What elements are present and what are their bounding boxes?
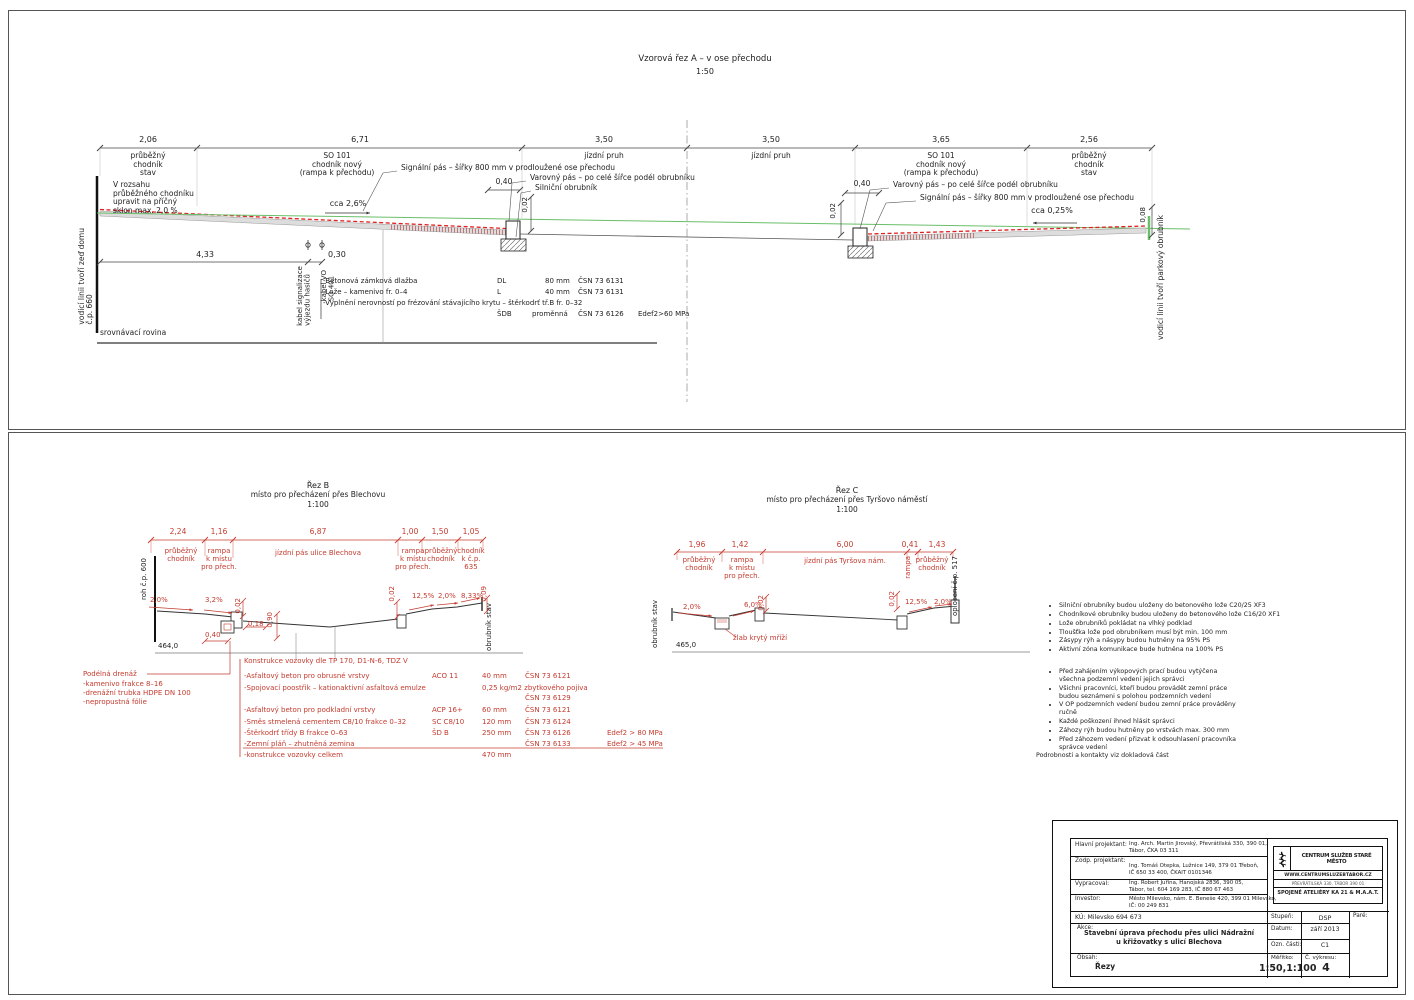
note-item: Aktivní zóna komunikace bude hutněna na … (1059, 646, 1389, 654)
note-item: Záhozy rýh budou hutněny po vrstvách max… (1059, 727, 1389, 735)
dim-b-040: 0,40 (205, 631, 221, 639)
tb-value-investor: Město Milevsko, nám. E. Beneše 420, 399 … (1129, 896, 1277, 910)
tb-divider (1071, 953, 1349, 954)
notes-list-2: Před zahájením výkopových prací budou vy… (1044, 668, 1389, 753)
dim-030: 0,30 (328, 250, 346, 259)
dim-a-label-1: průběžný chodník stav (130, 152, 165, 178)
mat-row1-norm: ČSN 73 6131 (578, 277, 624, 285)
mat-row2-norm: ČSN 73 6131 (578, 288, 624, 296)
dim-008: 0,08 (1140, 207, 1147, 223)
dim-b-002-left: 0,02 (235, 598, 242, 614)
dim-002-right: 0,02 (830, 203, 837, 219)
pav-r4-code: ACP 16+ (432, 706, 463, 714)
dim-c-label-2: rampa k místu pro přech. (724, 556, 760, 580)
pav-r7-note: Edef2 > 45 MPa (607, 740, 663, 748)
dim-a-label-2: SO 101 chodník nový (rampa k přechodu) (300, 152, 375, 178)
pav-r6-name: -Štěrkodrť třídy B frakce 0–63 (244, 729, 348, 737)
pav-r3-norm: ČSN 73 6129 (525, 694, 571, 702)
dim-c-002-left: 0,02 (758, 595, 765, 611)
dim-c-002-right: 0,02 (889, 591, 896, 607)
tb-label-copy: Paré: (1353, 913, 1368, 919)
slope-b-4: 2,0% (438, 592, 456, 600)
pav-r6-code: ŠD B (432, 729, 449, 737)
title-block: Hlavní projektant: Ing. Arch. Martin Jir… (1070, 838, 1388, 977)
pav-r7-name: -Zemní pláň – zhutněná zemina (244, 740, 355, 748)
mat-row1-code: DL (497, 277, 506, 285)
tb-divider (1071, 856, 1267, 857)
slope-c-4: 2,0% (934, 598, 952, 606)
dim-c-2: 1,42 (732, 541, 749, 550)
tb-divider (1267, 923, 1349, 924)
drainage-title: Podélná drenáž (83, 670, 137, 678)
dim-a-label-5: SO 101 chodník nový (rampa k přechodu) (904, 152, 979, 178)
tb-value-resp-designer: Ing. Tomáš Otepka, Lužnice 149, 379 01 T… (1129, 863, 1259, 877)
tb-value-chief-designer: Ing. Arch. Martin Jirovský, Převrátilská… (1129, 841, 1267, 855)
tb-label-date: Datum: (1271, 926, 1293, 932)
csm-logo-icon (1274, 847, 1291, 870)
slope-b-3: 12,5% (412, 592, 434, 600)
pav-r6-note: Edef2 > 80 MPa (607, 729, 663, 737)
dim-c-3: 6,00 (837, 541, 854, 550)
tb-divider (1349, 911, 1350, 978)
drainage-item-2: -drenážní trubka HDPE DN 100 (83, 689, 191, 697)
dim-b-018: 0,18 (248, 620, 264, 628)
dim-c-label-3: jízdní pás Tyršova nám. (804, 557, 886, 565)
pav-r4-norm: ČSN 73 6121 (525, 706, 571, 714)
tb-cadastre: KÚ: Milevsko 694 673 (1075, 914, 1142, 921)
slope-b-2: 3,2% (205, 596, 223, 604)
drainage-item-1: -kamenivo frakce 8–16 (83, 680, 163, 688)
note-item: Zásypy rýh a násypy budou hutněny na 95%… (1059, 637, 1389, 645)
annotation-road-curb: Silniční obrubník (535, 184, 597, 193)
company-web: WWW.CENTRUMSLUZEBTABOR.CZ (1274, 871, 1382, 880)
dim-b-009: 0,09 (481, 586, 488, 602)
mat-row4-norm: ČSN 73 6126 (578, 310, 624, 318)
dim-b-6: 1,05 (463, 528, 480, 537)
tb-divider (1071, 894, 1267, 895)
pav-r5-thickness: 120 mm (482, 718, 511, 726)
tb-divider (1071, 911, 1389, 912)
mat-row1-name: -Betonová zámková dlažba (323, 277, 417, 285)
mat-row3-name: -Vyplnění nerovností po frézování stávaj… (323, 299, 582, 307)
drawing-sheet: { "colors": {"annotation_red": "#c43b2f"… (0, 0, 1414, 1000)
dim-a-4: 3,50 (762, 135, 780, 144)
annotation-warning-strip-right: Varovný pás – po celé šířce podél obrubn… (893, 181, 1058, 190)
guide-line-wall-label: vodicí linii tvoří zeď domu č.p. 660 (78, 228, 94, 325)
dim-c-1: 1,96 (689, 541, 706, 550)
dim-433: 4,33 (196, 250, 214, 259)
mat-row2-name: -Lože – kamenivo fr. 0–4 (323, 288, 407, 296)
dim-c-label-1: průběžný chodník (683, 556, 716, 572)
dim-b-label-1: průběžný chodník (165, 547, 198, 563)
slope-c-1: 2,0% (683, 603, 701, 611)
dim-a-1: 2,06 (139, 135, 157, 144)
curb-state-c-label: obrubník stav (652, 600, 659, 648)
pav-r2-thickness: 0,25 kg/m2 zbytkového pojiva (482, 684, 588, 692)
pav-r8-thickness: 470 mm (482, 751, 511, 759)
pav-r1-thickness: 40 mm (482, 672, 507, 680)
dim-b-4: 1,00 (402, 528, 419, 537)
note-item: Všichni pracovníci, kteří budou provádět… (1059, 685, 1389, 701)
slope-b-1: 2,0% (150, 596, 168, 604)
pav-r2-name: -Spojovací poostřik – kationaktivní asfa… (244, 684, 426, 692)
dim-b-2: 1,16 (211, 528, 228, 537)
datum-plane-label: srovnávací rovina (100, 329, 166, 338)
tb-label-resp-designer: Zodp. projektant: (1075, 858, 1125, 864)
dim-c-label-5: průběžný chodník (916, 556, 949, 572)
company-name: CENTRUM SLUŽEB STARÉ MĚSTO (1291, 847, 1382, 870)
tb-label-content: Obsah: (1077, 955, 1097, 961)
dim-a-3: 3,50 (595, 135, 613, 144)
dim-b-002-right: 0,02 (389, 586, 396, 602)
corner-house-label: roh č.p. 600 (141, 558, 148, 600)
section-c-scale: 1:100 (836, 506, 858, 515)
pav-r5-code: SC C8/10 (432, 718, 464, 726)
pav-r7-norm: ČSN 73 6133 (525, 740, 571, 748)
pav-r1-norm: ČSN 73 6121 (525, 672, 571, 680)
dim-a-2: 6,71 (351, 135, 369, 144)
slope-c-3: 12,5% (905, 598, 927, 606)
dim-a-label-3: jízdní pruh (584, 152, 623, 161)
section-b-scale: 1:100 (307, 501, 329, 510)
dim-b-label-3: jízdní pás ulice Blechova (275, 549, 361, 557)
dim-b-3: 6,87 (310, 528, 327, 537)
tb-label-part: Ozn. části: (1271, 942, 1302, 948)
tb-value-content: Řezy (1095, 962, 1115, 971)
tb-value-drawing-no: 4 (1303, 961, 1349, 974)
note-item: Tloušťka lože pod obrubníkem musí být mi… (1059, 629, 1389, 637)
cable-signal-label: kabel signalizace výjezdu hasičů (297, 266, 312, 326)
company-logo-box: CENTRUM SLUŽEB STARÉ MĚSTO WWW.CENTRUMSL… (1273, 846, 1383, 904)
pav-r5-norm: ČSN 73 6124 (525, 718, 571, 726)
guide-line-park-curb-label: vodicí linii tvoří parkový obrubník (1157, 215, 1165, 340)
dim-c-label-4: rampa (905, 556, 912, 579)
dim-b-090: 0,90 (267, 612, 274, 628)
tb-value-drawn-by: Ing. Robert Juřina, Hanojská 2836, 390 0… (1129, 880, 1243, 894)
dim-040-right: 0,40 (854, 180, 871, 189)
mat-row4-thickness: proměnná (532, 310, 568, 318)
mat-row2-thickness: 40 mm (545, 288, 570, 296)
mat-row4-note: Edef2>60 MPa (638, 310, 689, 318)
tb-label-investor: Investor: (1075, 896, 1100, 902)
dim-c-5: 1,43 (929, 541, 946, 550)
tb-value-stage: DSP (1301, 914, 1349, 922)
note-item: Lože obrubníků pokládat na vlhký podklad (1059, 620, 1389, 628)
note-item: V OP podzemních vedení budou zemní práce… (1059, 701, 1389, 717)
section-b-subtitle: místo pro přecházení přes Blechovu (251, 491, 386, 500)
fence-label: oplocení č.p. 517 (952, 556, 959, 616)
slope-left: cca 2,6% (330, 199, 367, 208)
section-c-subtitle: místo pro přecházení přes Tyršovo náměst… (766, 496, 927, 505)
dim-b-1: 2,24 (170, 528, 187, 537)
dim-b-label-2: rampa k místu pro přech. (201, 547, 237, 571)
notes-footer: Podrobnosti a kontakty viz dokladová čás… (1036, 752, 1169, 759)
dim-a-label-6: průběžný chodník stav (1071, 152, 1106, 178)
note-item: Chodníkové obrubníky budou uloženy do be… (1059, 611, 1389, 619)
gutter-label: žlab krytý mříží (733, 634, 787, 642)
curb-state-b-label: obrubník stav (486, 603, 493, 651)
tb-label-chief-designer: Hlavní projektant: (1075, 842, 1127, 848)
elevation-b: 464,0 (158, 642, 178, 650)
dim-040-left: 0,40 (496, 178, 513, 187)
section-c-title: Řez C (836, 486, 858, 495)
tb-value-part: C1 (1301, 942, 1349, 949)
annotation-warning-strip-left: Varovný pás – po celé šířce podél obrubn… (530, 174, 695, 183)
pav-r6-norm: ČSN 73 6126 (525, 729, 571, 737)
pav-r1-code: ACO 11 (432, 672, 458, 680)
logo-row: CENTRUM SLUŽEB STARÉ MĚSTO (1274, 847, 1382, 871)
pav-r1-name: -Asfaltový beton pro obrusné vrstvy (244, 672, 370, 680)
annotation-signal-strip-right: Signální pás – šířky 800 mm v prodloužen… (920, 194, 1134, 203)
slope-right: cca 0,25% (1031, 206, 1073, 215)
dim-002-left: 0,02 (522, 197, 529, 213)
tb-label-scale: Měřítko: (1271, 955, 1294, 961)
dim-b-label-6: chodník k č.p. 635 (457, 547, 484, 571)
mat-row2-code: L (497, 288, 501, 296)
notes-list-1: Silniční obrubníky budou uloženy do beto… (1044, 602, 1389, 655)
tb-value-project: Stavební úprava přechodu přes ulici Nádr… (1071, 929, 1267, 947)
pav-r6-thickness: 250 mm (482, 729, 511, 737)
tb-divider (1071, 923, 1267, 924)
note-item: Před zahájením výkopových prací budou vy… (1059, 668, 1389, 684)
note-item: Silniční obrubníky budou uloženy do beto… (1059, 602, 1389, 610)
dim-a-label-4: jízdní pruh (751, 152, 790, 161)
note-item: Před záhozem vedení přizvat k odsouhlase… (1059, 736, 1389, 752)
dim-b-5: 1,50 (432, 528, 449, 537)
dim-a-5: 3,65 (932, 135, 950, 144)
pav-r8-name: -konstrukce vozovky celkem (244, 751, 343, 759)
drainage-item-3: -nepropustná fólie (83, 698, 147, 706)
tb-divider (1267, 939, 1349, 940)
tb-label-drawn-by: Vypracoval: (1075, 881, 1109, 887)
pav-r4-thickness: 60 mm (482, 706, 507, 714)
section-a-scale: 1:50 (696, 67, 714, 76)
dim-c-4: 0,41 (902, 541, 919, 550)
company-address: PŘEVRÁTILSKÁ 330, TÁBOR 390 01 (1274, 880, 1382, 888)
company-atelier: SPOJENÉ ATELIÉRY KA 21 & M.A.A.T. (1274, 888, 1382, 898)
mat-row4-code: ŠDB (497, 310, 512, 318)
annotation-signal-strip-left: Signální pás – šířky 800 mm v prodloužen… (401, 164, 615, 173)
pav-r4-name: -Asfaltový beton pro podkladní vrstvy (244, 706, 375, 714)
mat-row1-thickness: 80 mm (545, 277, 570, 285)
section-a-title: Vzorová řez A – v ose přechodu (638, 55, 771, 65)
section-b-title: Řez B (307, 481, 329, 490)
tb-value-date: září 2013 (1301, 926, 1349, 933)
pav-r5-name: -Směs stmelená cementem C8/10 frakce 0–3… (244, 718, 406, 726)
dim-b-label-5: průběžný chodník (425, 547, 458, 563)
tb-label-stage: Stupeň: (1271, 914, 1294, 920)
note-cross-slope: V rozsahu průběžného chodníku upravit na… (113, 181, 194, 216)
elevation-c: 465,0 (676, 641, 696, 649)
note-item: Každé poškození ihned hlásit správci (1059, 718, 1389, 726)
pavement-title: Konstrukce vozovky dle TP 170, D1-N-6, T… (244, 657, 408, 665)
cable-vo-label: kabel VO SO 401 (321, 270, 336, 301)
dim-a-6: 2,56 (1080, 135, 1098, 144)
